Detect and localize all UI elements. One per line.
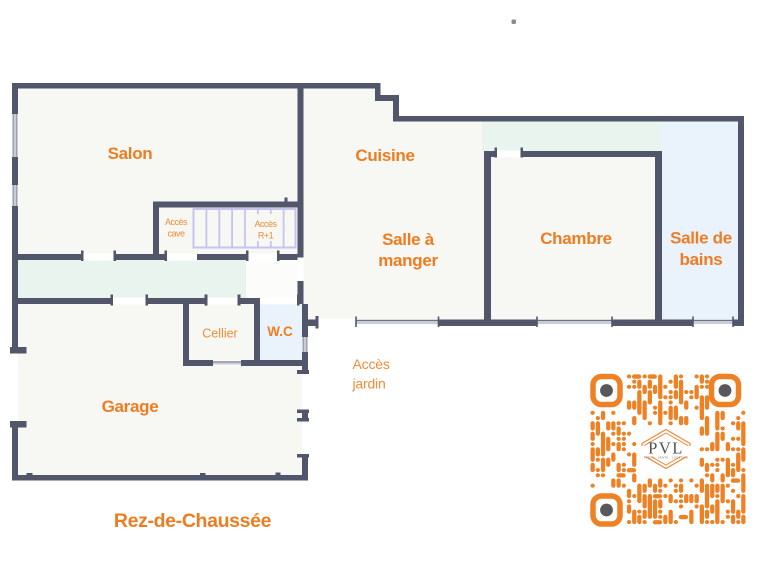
svg-text:Accès: Accès xyxy=(165,217,188,227)
svg-text:PVL: PVL xyxy=(648,439,684,458)
svg-text:bains: bains xyxy=(680,250,723,269)
svg-text:cave: cave xyxy=(167,229,185,239)
svg-text:Accès: Accès xyxy=(353,356,390,372)
svg-text:Accès: Accès xyxy=(254,219,277,229)
svg-text:Salon: Salon xyxy=(108,144,153,163)
svg-text:Cellier: Cellier xyxy=(202,327,237,341)
svg-text:PVELS · VENTE · LOCATION: PVELS · VENTE · LOCATION xyxy=(644,455,688,459)
svg-text:Cuisine: Cuisine xyxy=(355,146,414,165)
svg-text:jardin: jardin xyxy=(352,376,386,392)
svg-text:W.C: W.C xyxy=(267,324,293,339)
svg-text:Rez-de-Chaussée: Rez-de-Chaussée xyxy=(114,510,272,532)
svg-text:Chambre: Chambre xyxy=(540,229,612,248)
svg-text:R+1: R+1 xyxy=(258,231,274,241)
svg-text:manger: manger xyxy=(378,251,438,270)
svg-text:Salle de: Salle de xyxy=(670,229,732,248)
svg-text:Garage: Garage xyxy=(102,397,159,416)
svg-text:Salle à: Salle à xyxy=(382,230,435,249)
